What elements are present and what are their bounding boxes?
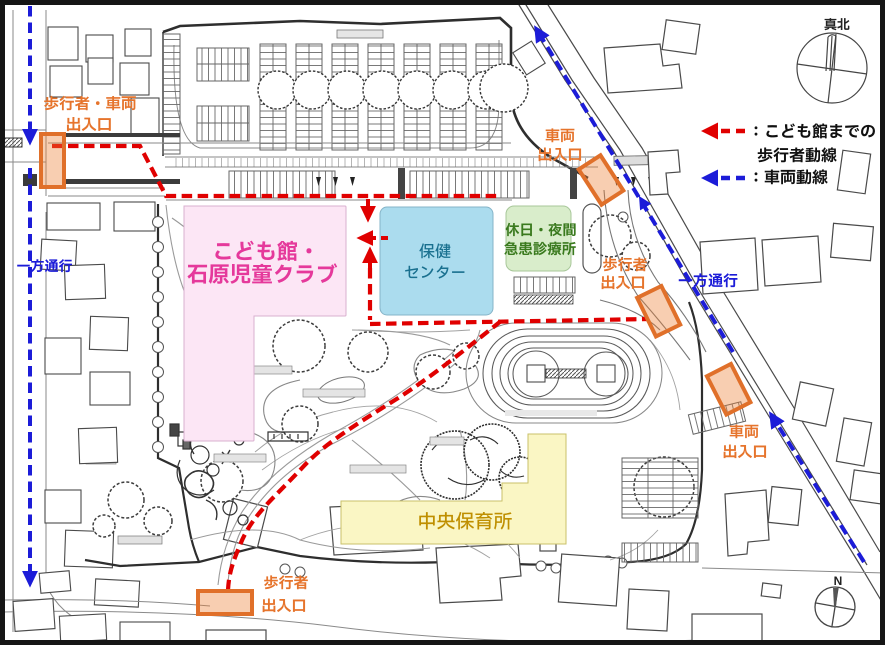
svg-text:N: N — [834, 574, 843, 588]
